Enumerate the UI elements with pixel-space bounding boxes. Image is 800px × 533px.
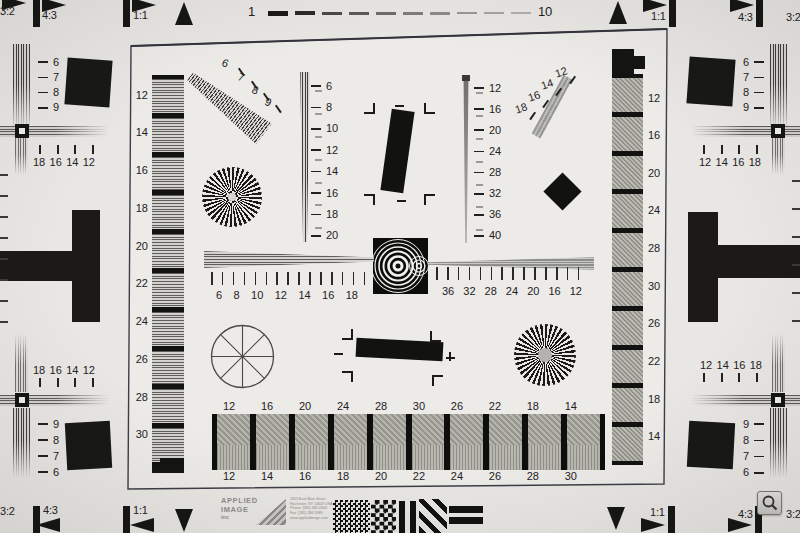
aspect-bar — [669, 0, 676, 27]
aspect-label: 1:1 — [133, 10, 148, 21]
wedge-strip — [15, 136, 28, 176]
wedge-number: 8 — [38, 87, 68, 99]
grayscale-number: 20 — [299, 401, 311, 412]
corner-br-wedge-labels: 9876 — [734, 418, 764, 479]
aspect-arrow-icon — [36, 518, 60, 532]
scale-number: 12 — [275, 290, 287, 301]
wedge-strip — [15, 332, 28, 392]
wedge-number: 9 — [38, 418, 68, 430]
wedge-tip — [462, 75, 470, 81]
aspect-label: 3:2 — [786, 12, 800, 23]
frequency-number: 24 — [648, 205, 670, 217]
tick-row — [39, 145, 95, 154]
left-t-bar-horizontal — [0, 251, 77, 281]
wedge-number: 9 — [734, 418, 764, 430]
black-patch — [686, 56, 735, 106]
center-vertical-scale: 68101214161820 — [311, 80, 345, 242]
grayscale-number: 14 — [261, 471, 273, 482]
frequency-number: 22 — [648, 356, 670, 368]
tick-number: 16 — [50, 365, 62, 376]
vertical-bars-pattern — [399, 501, 416, 533]
wedge-strip — [772, 332, 785, 392]
grayscale-number: 12 — [223, 401, 235, 412]
ruler-ticks-left — [0, 174, 8, 324]
scale-number: 20 — [527, 286, 539, 297]
corner-bracket — [342, 371, 353, 382]
right-t-bar-vertical — [688, 212, 718, 322]
scale-number: 16 — [474, 103, 510, 115]
aspect-arrow-icon — [728, 518, 752, 532]
left-frequency-bars — [152, 75, 184, 466]
scale-number: 24 — [474, 145, 510, 157]
registration-mark-center — [775, 397, 781, 403]
wedge-number: 6 — [38, 56, 68, 68]
grayscale-number: 24 — [451, 471, 463, 482]
scale-number: 8 — [311, 101, 345, 113]
mid-tick — [334, 353, 343, 355]
wedge-number: 6 — [38, 466, 68, 478]
grayscale-number: 24 — [337, 401, 349, 412]
registration-mark-center — [19, 397, 25, 403]
wedge-strip — [13, 44, 30, 134]
grayscale-number: 14 — [565, 401, 577, 412]
corner-tr-wedge-labels: 6789 — [734, 56, 764, 114]
fading-dash — [511, 12, 531, 14]
scale-number: 12 — [474, 82, 510, 94]
grayscale-number: 26 — [451, 401, 463, 412]
scale-number: 10 — [251, 290, 263, 301]
corner-tr-tick-numbers: 12141618 — [699, 157, 761, 168]
frequency-number: 14 — [648, 431, 670, 443]
wedge-number: 8 — [38, 434, 68, 446]
triangle-marker-icon — [175, 2, 193, 25]
scale-start: 1 — [248, 5, 255, 18]
tick-number: 14 — [717, 360, 729, 371]
grayscale-number: 18 — [337, 471, 349, 482]
tick-number: 18 — [749, 157, 761, 168]
grayscale-number: 22 — [413, 471, 425, 482]
fading-dash — [349, 12, 369, 15]
scale-number: 14 — [298, 290, 310, 301]
grayscale-number: 20 — [375, 471, 387, 482]
aspect-bar — [123, 506, 130, 533]
aspect-bar — [123, 0, 130, 27]
coarse-checkerboard — [371, 500, 396, 533]
tick-number: 16 — [732, 157, 744, 168]
fading-dash — [295, 11, 315, 15]
corner-bracket — [364, 194, 375, 205]
scale-number: 16 — [322, 290, 334, 301]
fading-dash — [457, 12, 477, 14]
left-column-labels: 12141618202224262830 — [128, 89, 148, 441]
tick-number: 18 — [33, 365, 45, 376]
frequency-number: 16 — [648, 130, 670, 142]
tick-number: 14 — [66, 157, 78, 168]
right-column-labels: 12162024283026221814 — [648, 92, 670, 443]
right-frequency-bars — [612, 74, 643, 465]
frequency-number: 24 — [128, 316, 148, 328]
tick-number: 12 — [83, 365, 95, 376]
triangle-marker-icon — [175, 509, 193, 532]
fading-dash — [376, 12, 396, 15]
fading-dash — [268, 11, 288, 16]
scale-number: 14 — [311, 166, 345, 178]
scale-number: 18 — [311, 209, 345, 221]
scale-number: 32 — [463, 286, 475, 297]
logo-line2: IMAGE — [221, 505, 258, 514]
frequency-number: 28 — [648, 243, 670, 255]
tick-number: 16 — [50, 157, 62, 168]
aspect-bar — [756, 0, 763, 27]
corner-bl-tick-numbers: 18161412 — [33, 365, 95, 376]
black-patch — [64, 57, 112, 107]
triangle-marker-icon — [609, 1, 627, 24]
horizontal-scale-left: 681012141618 — [216, 290, 358, 301]
tick-number: 12 — [699, 157, 711, 168]
grayscale-number: 12 — [223, 471, 235, 482]
horizontal-ticks — [436, 267, 588, 280]
right-vertical-scale: 1216202428323640 — [474, 82, 510, 242]
texture-bar-block — [212, 414, 605, 470]
corner-bracket — [364, 103, 375, 114]
fading-dash — [403, 12, 423, 15]
scale-number: 16 — [548, 286, 560, 297]
step-mark — [612, 49, 634, 74]
wedge-number: 6 — [734, 56, 764, 68]
grayscale-number: 30 — [413, 401, 425, 412]
frequency-number: 16 — [128, 165, 148, 177]
grayscale-number: 16 — [261, 401, 273, 412]
aspect-label: 4:3 — [738, 12, 753, 23]
wedge-number: 7 — [734, 451, 764, 463]
tick-number: 12 — [700, 360, 712, 371]
wedge-number: 9 — [734, 102, 764, 114]
step-mark — [632, 56, 645, 69]
wedge-strip — [770, 408, 787, 480]
logo-line3: inc — [221, 514, 258, 521]
diagonal-stripes-pattern — [419, 499, 447, 533]
tick-row — [703, 145, 759, 154]
grayscale-number: 28 — [527, 471, 539, 482]
black-patch — [687, 421, 735, 469]
frequency-number: 12 — [648, 92, 670, 104]
corner-bracket — [397, 200, 406, 207]
tick-row — [703, 373, 759, 382]
tick-number: 14 — [66, 365, 78, 376]
wedge-strip — [772, 136, 785, 176]
registered-mark: ® — [252, 496, 255, 501]
fading-dash — [322, 12, 342, 15]
corner-tl-wedge-labels: 6789 — [38, 56, 68, 114]
tick-row — [39, 378, 95, 387]
black-patch — [65, 421, 112, 470]
frequency-number: 18 — [128, 202, 148, 214]
aspect-bar — [33, 0, 40, 27]
tick-number: 18 — [750, 360, 762, 371]
address-line: www.appliedimage.com — [290, 516, 332, 521]
scale-number: 16 — [311, 187, 345, 199]
frequency-number: 20 — [128, 240, 148, 252]
corner-bracket — [395, 100, 404, 107]
tick-number: 14 — [716, 157, 728, 168]
wedge-number: 6 — [734, 467, 764, 479]
iso12233-test-chart-photo: 3:2 4:3 1:1 1 10 1:1 4:3 3:2 3:2 4:3 1:1… — [0, 0, 800, 533]
frequency-number: 26 — [128, 353, 148, 365]
ruler-ticks-right — [792, 180, 800, 330]
mid-tick — [449, 352, 451, 361]
corner-bracket — [424, 194, 435, 205]
grayscale-number: 26 — [489, 471, 501, 482]
aspect-label: 4:3 — [43, 505, 58, 516]
frequency-number: 14 — [128, 127, 148, 139]
tick-number: 12 — [83, 157, 95, 168]
scale-number: 12 — [570, 286, 582, 297]
step-mark — [152, 466, 162, 473]
fine-checkerboard — [333, 500, 370, 533]
frequency-number: 22 — [128, 278, 148, 290]
scale-number: 6 — [216, 290, 222, 301]
scale-end: 10 — [538, 5, 552, 18]
frequency-number: 18 — [648, 393, 670, 405]
aspect-arrow-icon — [641, 518, 665, 532]
magnifier-zoom-button[interactable] — [757, 491, 782, 515]
frequency-number: 30 — [648, 280, 670, 292]
grayscale-number: 16 — [299, 471, 311, 482]
left-t-bar-vertical — [72, 210, 100, 322]
wedge-strip — [13, 408, 30, 480]
scale-number: 24 — [506, 286, 518, 297]
horizontal-bar-pattern — [449, 517, 483, 524]
aspect-label: 4:3 — [42, 10, 57, 21]
corner-br-tick-numbers: 12141618 — [700, 360, 762, 371]
registration-mark-center — [775, 128, 781, 134]
scale-number: 28 — [474, 167, 510, 179]
scale-number: 20 — [474, 124, 510, 136]
zone-plate — [373, 238, 428, 294]
aspect-bar — [668, 506, 675, 533]
aspect-label: 3:2 — [0, 506, 15, 517]
scale-number: 20 — [311, 230, 345, 242]
step-mark — [160, 458, 184, 473]
corner-tl-tick-numbers: 18161412 — [33, 157, 95, 168]
tick-number: 18 — [33, 157, 45, 168]
right-t-bar-horizontal — [716, 245, 800, 278]
wedge-strip — [770, 44, 787, 134]
fading-dash — [430, 12, 450, 15]
aspect-arrow-icon — [130, 518, 154, 532]
wedge-number: 8 — [734, 434, 764, 446]
fading-dash — [484, 12, 504, 14]
segmented-circle — [209, 323, 276, 390]
aspect-label: 1:1 — [651, 11, 666, 22]
aspect-label: 1:1 — [133, 505, 148, 516]
scale-number: 12 — [311, 144, 345, 156]
grayscale-number: 22 — [489, 401, 501, 412]
scale-number: 36 — [474, 209, 510, 221]
scale-number: 6 — [311, 80, 345, 92]
corner-bracket — [430, 331, 441, 342]
scale-number: 10 — [311, 123, 345, 135]
grayscale-number: 28 — [375, 401, 387, 412]
frequency-number: 26 — [648, 318, 670, 330]
corner-bracket — [424, 103, 435, 114]
wedge-number: 7 — [734, 71, 764, 83]
aspect-label: 3:2 — [0, 6, 15, 17]
horizontal-scale-right: 36322824201612 — [442, 286, 582, 297]
grayscale-bottom-labels: 12141618202224262830 — [223, 471, 577, 482]
triangle-marker-icon — [607, 507, 625, 530]
corner-bl-wedge-labels: 9876 — [38, 418, 68, 478]
wedge-number: 7 — [38, 71, 68, 83]
frequency-number: 30 — [128, 429, 148, 441]
star-center — [228, 193, 236, 201]
corner-bracket — [432, 375, 443, 386]
registration-mark-center — [19, 128, 25, 134]
horizontal-bar-pattern — [449, 506, 483, 513]
scale-number: 28 — [485, 286, 497, 297]
horizontal-ticks — [211, 272, 369, 285]
grayscale-number: 18 — [527, 401, 539, 412]
frequency-number: 20 — [648, 167, 670, 179]
frequency-number: 28 — [128, 391, 148, 403]
scale-number: 40 — [474, 230, 510, 242]
aspect-label: 4:3 — [738, 509, 753, 520]
grayscale-top-labels: 12162024283026221814 — [223, 401, 577, 412]
magnifier-icon — [761, 494, 779, 512]
aspect-label: 3:2 — [786, 509, 800, 520]
aspect-label: 1:1 — [650, 507, 665, 518]
wedge-number: 7 — [38, 450, 68, 462]
scale-number: 8 — [234, 290, 240, 301]
grayscale-number: 30 — [565, 471, 577, 482]
wedge-number: 8 — [734, 87, 764, 99]
logo-address: 1653 East Main Street Rochester, NY 1460… — [290, 497, 332, 521]
frequency-number: 12 — [128, 89, 148, 101]
star-center — [538, 348, 552, 362]
corner-bracket — [342, 329, 353, 340]
scale-number: 18 — [346, 290, 358, 301]
scale-number: 32 — [474, 188, 510, 200]
scale-number: 36 — [442, 286, 454, 297]
tick-number: 16 — [733, 360, 745, 371]
